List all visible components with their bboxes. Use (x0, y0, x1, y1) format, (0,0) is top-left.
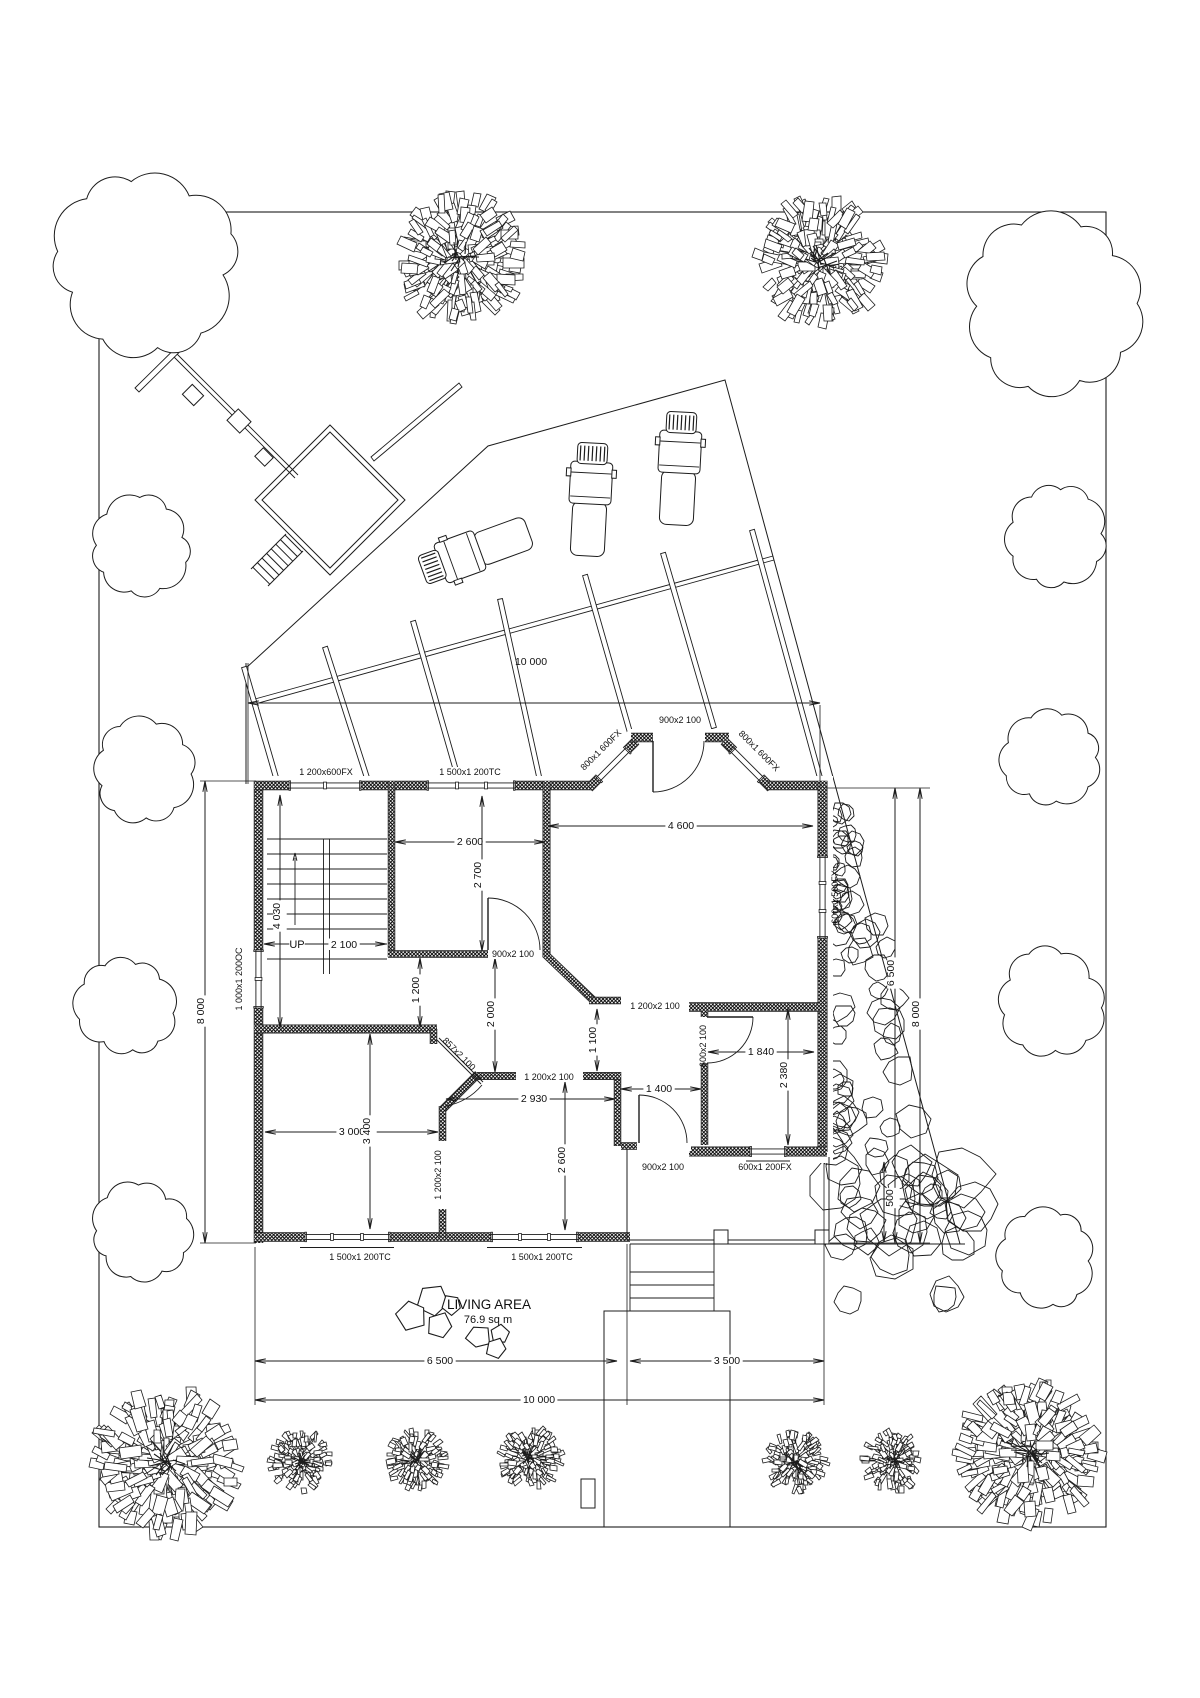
svg-text:10 000: 10 000 (515, 656, 547, 668)
svg-text:UP: UP (289, 939, 304, 951)
svg-text:1 400: 1 400 (646, 1083, 672, 1095)
svg-text:LIVING AREA: LIVING AREA (447, 1297, 531, 1312)
svg-text:1 200x2 100: 1 200x2 100 (524, 1072, 574, 1082)
svg-text:4 030: 4 030 (271, 903, 283, 929)
svg-text:2 700: 2 700 (472, 862, 484, 888)
svg-text:1 200: 1 200 (410, 977, 422, 1003)
svg-text:900x2 100: 900x2 100 (642, 1162, 684, 1172)
svg-text:3 500: 3 500 (714, 1355, 740, 1367)
svg-text:900x2 100: 900x2 100 (659, 715, 701, 725)
svg-text:76.9 sq m: 76.9 sq m (464, 1314, 512, 1326)
svg-text:1 840: 1 840 (748, 1046, 774, 1058)
svg-text:1 500x1 200TC: 1 500x1 200TC (439, 767, 501, 777)
svg-text:1 200x600FX: 1 200x600FX (299, 767, 353, 777)
svg-text:600x1 500FX: 600x1 500FX (830, 870, 840, 924)
svg-text:6 500: 6 500 (427, 1355, 453, 1367)
svg-text:1 000x1 200OC: 1 000x1 200OC (234, 947, 244, 1011)
svg-text:4 600: 4 600 (668, 820, 694, 832)
svg-text:600x2 100: 600x2 100 (698, 1025, 708, 1067)
svg-text:6 500: 6 500 (885, 960, 897, 986)
svg-text:2 600: 2 600 (556, 1147, 568, 1173)
svg-text:500: 500 (884, 1189, 896, 1207)
svg-text:8 000: 8 000 (195, 998, 207, 1024)
svg-text:900x2 100: 900x2 100 (492, 949, 534, 959)
svg-text:1 500x1 200TC: 1 500x1 200TC (329, 1252, 391, 1262)
svg-text:2 600: 2 600 (457, 836, 483, 848)
svg-text:2 930: 2 930 (521, 1093, 547, 1105)
svg-text:2 100: 2 100 (331, 939, 357, 951)
svg-text:1 200x2 100: 1 200x2 100 (630, 1001, 680, 1011)
svg-text:8 000: 8 000 (910, 1001, 922, 1027)
svg-text:1 100: 1 100 (587, 1027, 599, 1053)
svg-text:2 000: 2 000 (485, 1001, 497, 1027)
svg-text:600x1 200FX: 600x1 200FX (738, 1162, 792, 1172)
svg-text:1 200x2 100: 1 200x2 100 (433, 1150, 443, 1200)
svg-text:2 380: 2 380 (778, 1062, 790, 1088)
svg-text:3 400: 3 400 (361, 1118, 373, 1144)
svg-text:1 500x1 200TC: 1 500x1 200TC (511, 1252, 573, 1262)
svg-text:10 000: 10 000 (523, 1394, 555, 1406)
